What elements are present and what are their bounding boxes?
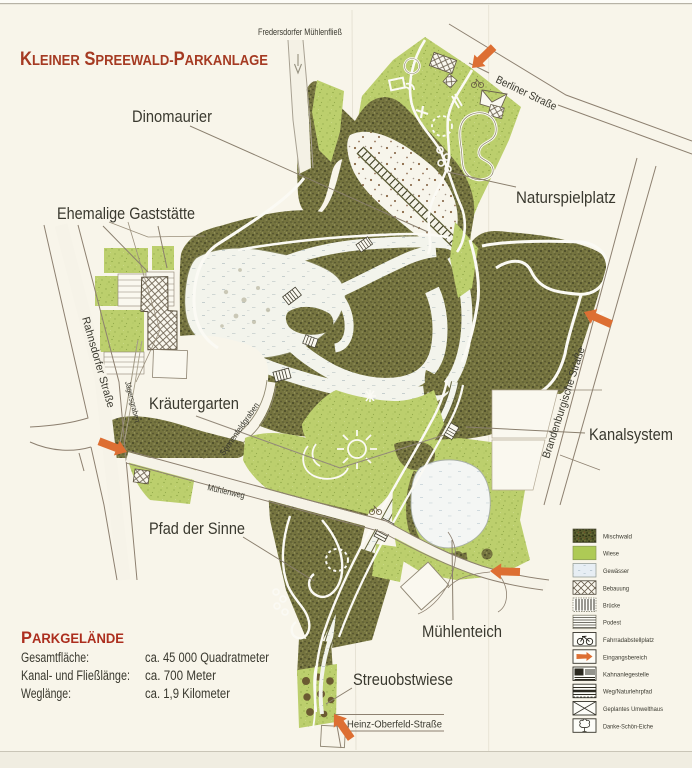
- svg-text:Pfad der Sinne: Pfad der Sinne: [149, 520, 245, 538]
- svg-text:Streuobstwiese: Streuobstwiese: [353, 671, 453, 689]
- svg-text:Fahrradabstellplatz: Fahrradabstellplatz: [603, 637, 654, 644]
- svg-text:Kräutergarten: Kräutergarten: [149, 395, 239, 413]
- svg-text:Weglänge:: Weglänge:: [21, 686, 71, 701]
- svg-text:Gewässer: Gewässer: [603, 568, 629, 575]
- svg-text:Eingangsbereich: Eingangsbereich: [603, 654, 647, 661]
- svg-text:Kanal- und Fließlänge:: Kanal- und Fließlänge:: [21, 668, 130, 683]
- svg-text:ca. 1,9 Kilometer: ca. 1,9 Kilometer: [145, 686, 230, 701]
- svg-text:Danke-Schön-Eiche: Danke-Schön-Eiche: [603, 723, 653, 730]
- svg-text:Gesamtfläche:: Gesamtfläche:: [21, 650, 89, 665]
- svg-text:ca. 45 000 Quadratmeter: ca. 45 000 Quadratmeter: [145, 650, 269, 665]
- svg-text:Heinz-Oberfeld-Straße: Heinz-Oberfeld-Straße: [347, 719, 442, 731]
- svg-text:Bebauung: Bebauung: [603, 585, 629, 592]
- svg-text:Wiese: Wiese: [603, 551, 619, 558]
- svg-text:Brücke: Brücke: [603, 603, 620, 610]
- svg-text:Geplantes Umwelthaus: Geplantes Umwelthaus: [603, 706, 663, 713]
- svg-text:Naturspielplatz: Naturspielplatz: [516, 189, 616, 207]
- svg-text:KLEINER SPREEWALD-PARKANLAGE: KLEINER SPREEWALD-PARKANLAGE: [20, 49, 268, 70]
- svg-text:Mühlenteich: Mühlenteich: [422, 623, 502, 641]
- svg-text:Mischwald: Mischwald: [603, 534, 632, 541]
- svg-text:Weg/Naturlehrpfad: Weg/Naturlehrpfad: [603, 689, 652, 696]
- svg-text:Podest: Podest: [603, 620, 621, 627]
- svg-text:Kahnanlegestelle: Kahnanlegestelle: [603, 672, 649, 679]
- svg-text:ca. 700 Meter: ca. 700 Meter: [145, 668, 216, 683]
- svg-text:Dinomaurier: Dinomaurier: [132, 108, 212, 126]
- svg-text:Ehemalige Gaststätte: Ehemalige Gaststätte: [57, 205, 195, 223]
- svg-text:Kanalsystem: Kanalsystem: [589, 426, 673, 444]
- svg-text:Fredersdorfer Mühlenfließ: Fredersdorfer Mühlenfließ: [258, 27, 342, 38]
- svg-text:PARKGELÄNDE: PARKGELÄNDE: [21, 628, 124, 647]
